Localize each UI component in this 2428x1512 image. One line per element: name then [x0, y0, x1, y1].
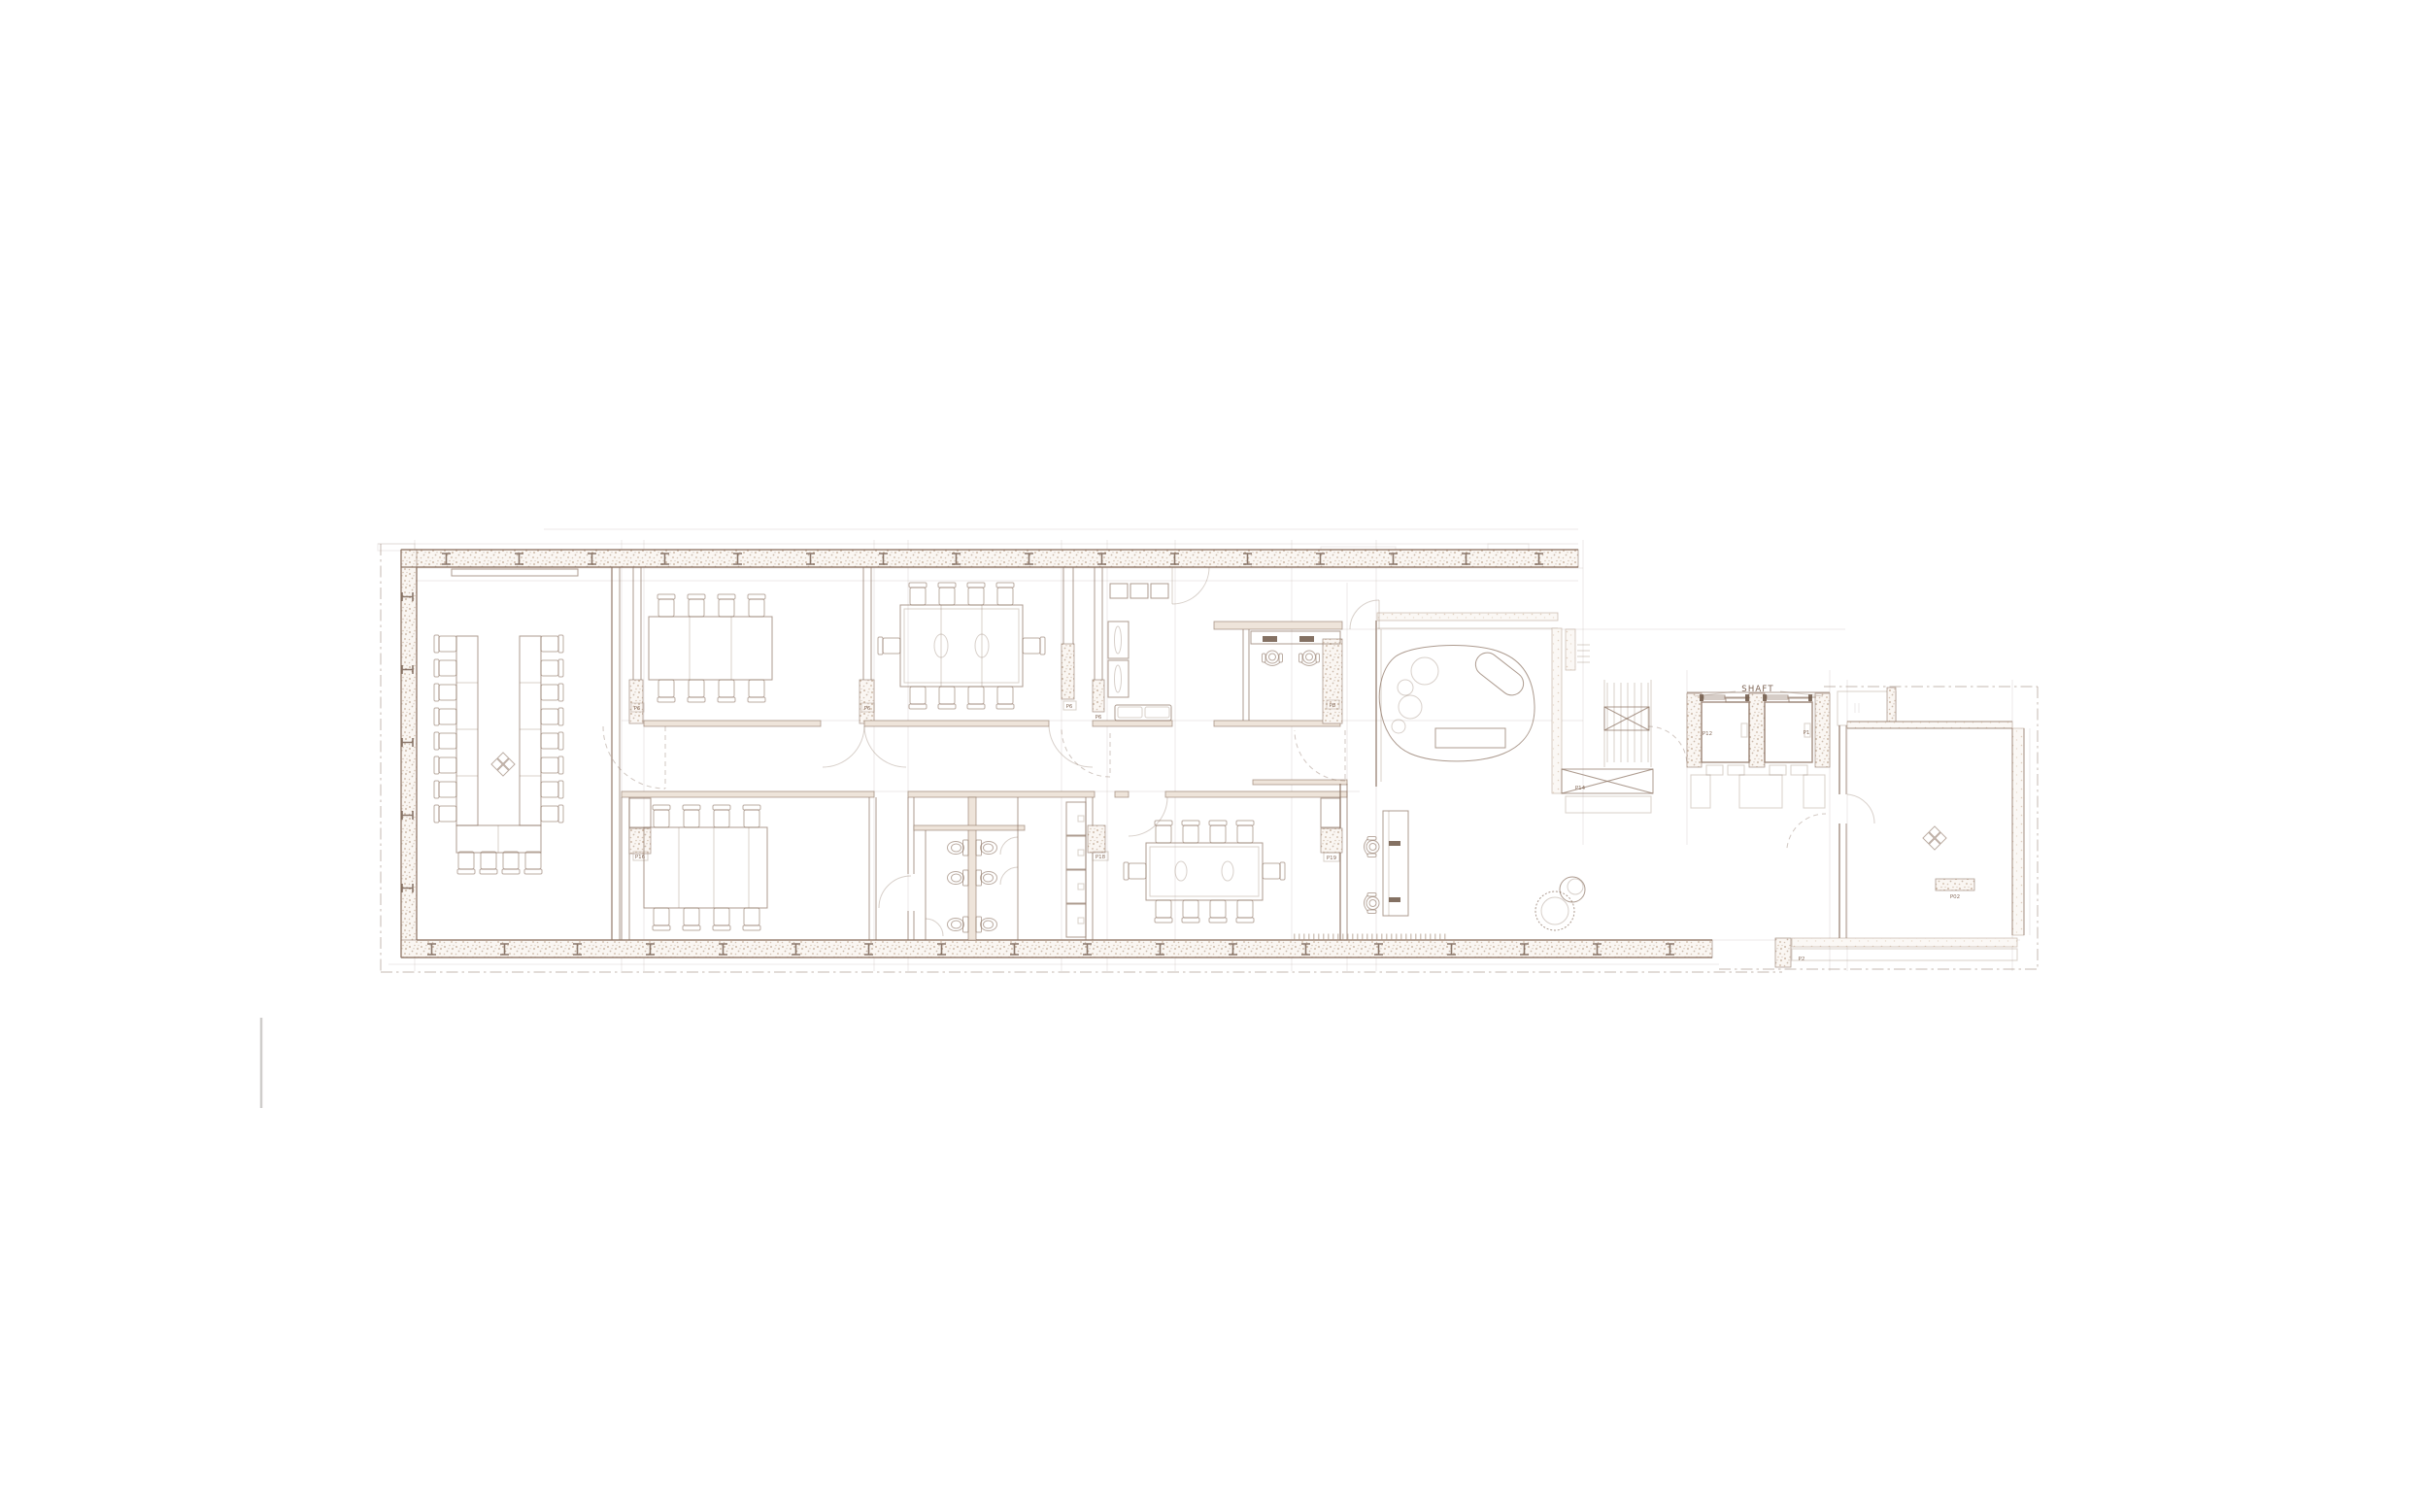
meeting-room-c	[644, 805, 767, 930]
floor-diamond-motif	[491, 753, 515, 776]
label-p16: P16	[635, 855, 646, 860]
toilet-icon	[948, 840, 969, 856]
monitor-icon	[1389, 897, 1400, 902]
plant-icon	[1535, 877, 1585, 930]
task-chair-icon	[1299, 651, 1320, 666]
label-p8: P8	[1330, 703, 1336, 709]
label-p6-a: P6	[634, 706, 641, 712]
meeting-room-d	[1124, 821, 1285, 923]
shelf-icon	[1130, 584, 1148, 598]
floor-plan-drawing: SHAFT P6 P6 P6 P6 P8 P16 P18 P19 P14 P12…	[0, 0, 2428, 1512]
toilet-icon	[976, 917, 997, 932]
toilet-icon	[948, 870, 969, 886]
reception-desk	[1379, 646, 1534, 761]
label-p14: P14	[1575, 786, 1586, 791]
meeting-room-a	[649, 594, 772, 702]
toilet-icon	[976, 870, 997, 886]
toilet-icon	[948, 917, 969, 932]
label-p1: P1	[1804, 730, 1810, 736]
floor-diamond-motif	[1923, 826, 1946, 850]
monitor-icon	[1263, 636, 1277, 642]
monitor-icon	[1299, 636, 1314, 642]
toilet-icon	[976, 840, 997, 856]
meeting-room-large	[434, 569, 578, 874]
lounge-library	[1108, 584, 1171, 721]
conference-table	[1146, 843, 1263, 900]
credenza	[452, 569, 578, 576]
cabinet-column	[1066, 802, 1086, 937]
elevator-bank	[1687, 691, 1830, 808]
label-p6-d: P6	[1096, 715, 1102, 721]
conference-table	[649, 617, 772, 680]
label-p19: P19	[1327, 856, 1337, 861]
floor-plan-canvas: SHAFT P6 P6 P6 P6 P8 P16 P18 P19 P14 P12…	[0, 0, 2428, 1512]
task-chair-icon	[1263, 651, 1283, 666]
shelf-icon	[1110, 584, 1128, 598]
shelf-icon	[1151, 584, 1168, 598]
task-chair-icon	[1365, 837, 1380, 857]
interior-walls	[612, 567, 1590, 940]
boundary-lines	[378, 529, 2038, 973]
conference-table	[900, 605, 1023, 687]
exterior-walls	[401, 550, 1712, 958]
monitor-icon	[1389, 841, 1400, 846]
label-shaft: SHAFT	[1741, 685, 1774, 694]
label-p2: P2	[1799, 957, 1805, 962]
label-p12: P12	[1703, 731, 1712, 737]
stair-treads	[1604, 680, 1651, 767]
label-p6-b: P6	[864, 706, 871, 712]
meeting-room-b	[878, 583, 1045, 709]
u-shaped-table	[456, 636, 541, 853]
hearth-hatch	[1936, 879, 1974, 890]
label-p6-c: P6	[1066, 704, 1073, 710]
right-room	[1775, 688, 2030, 967]
sofa	[1115, 705, 1171, 721]
shaft-box	[1604, 707, 1649, 730]
wc-block	[908, 797, 1105, 940]
stair-vestibule	[1562, 680, 1653, 813]
task-chair-icon	[1365, 893, 1380, 914]
label-p02: P02	[1950, 894, 1960, 900]
label-p18: P18	[1096, 855, 1106, 860]
